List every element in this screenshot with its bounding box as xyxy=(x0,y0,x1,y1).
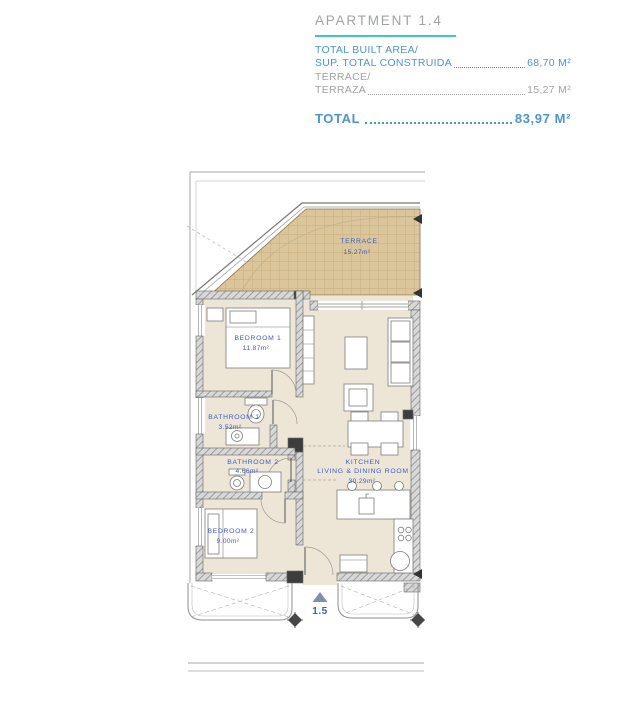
kitchen-island xyxy=(337,490,410,519)
terrace-label: TERRACE xyxy=(340,238,377,245)
column-marker xyxy=(287,612,303,628)
next-unit-marker: 1.5 xyxy=(312,592,327,617)
terrace: TERRACE 15.27m² xyxy=(192,203,420,298)
next-unit-label: 1.5 xyxy=(312,606,327,617)
sofa xyxy=(388,318,413,386)
kitchen-sink xyxy=(391,552,410,571)
floor-plan: TERRACE 15.27m² xyxy=(0,0,618,706)
entrance-recess-floor xyxy=(303,573,337,585)
coffee-table xyxy=(345,337,367,369)
armchair xyxy=(344,384,373,411)
bathroom2-label: BATHROOM 2 xyxy=(227,459,278,466)
kitchen-area: 30.29m² xyxy=(349,478,376,485)
up-arrow-icon xyxy=(313,592,328,602)
kitchen-label-line2: LIVING & DINING ROOM xyxy=(317,468,408,475)
bathroom2-area: 4.66m² xyxy=(236,468,259,475)
bathroom1-area: 3.52m² xyxy=(219,424,242,431)
tv-unit xyxy=(303,316,314,384)
vanity-sink-2 xyxy=(250,472,281,492)
balconies xyxy=(188,583,425,628)
terrace-area: 15.27m² xyxy=(344,249,371,256)
bedroom1-area: 11.87m² xyxy=(243,345,270,352)
bathroom1-label: BATHROOM 1 xyxy=(208,414,259,421)
bedroom1-label: BEDROOM 1 xyxy=(234,335,281,342)
nightstand xyxy=(207,308,223,321)
column-marker xyxy=(410,612,425,628)
bedroom2-label: BEDROOM 2 xyxy=(207,528,254,535)
bedroom2-area: 9.00m² xyxy=(217,538,240,545)
brochure-page: APARTMENT 1.4 TOTAL BUILT AREA/ SUP. TOT… xyxy=(0,0,618,706)
kitchen-counter xyxy=(391,519,414,573)
appliance xyxy=(340,555,367,572)
kitchen-label-line1: KITCHEN xyxy=(346,459,381,466)
bar-stool xyxy=(395,482,404,491)
